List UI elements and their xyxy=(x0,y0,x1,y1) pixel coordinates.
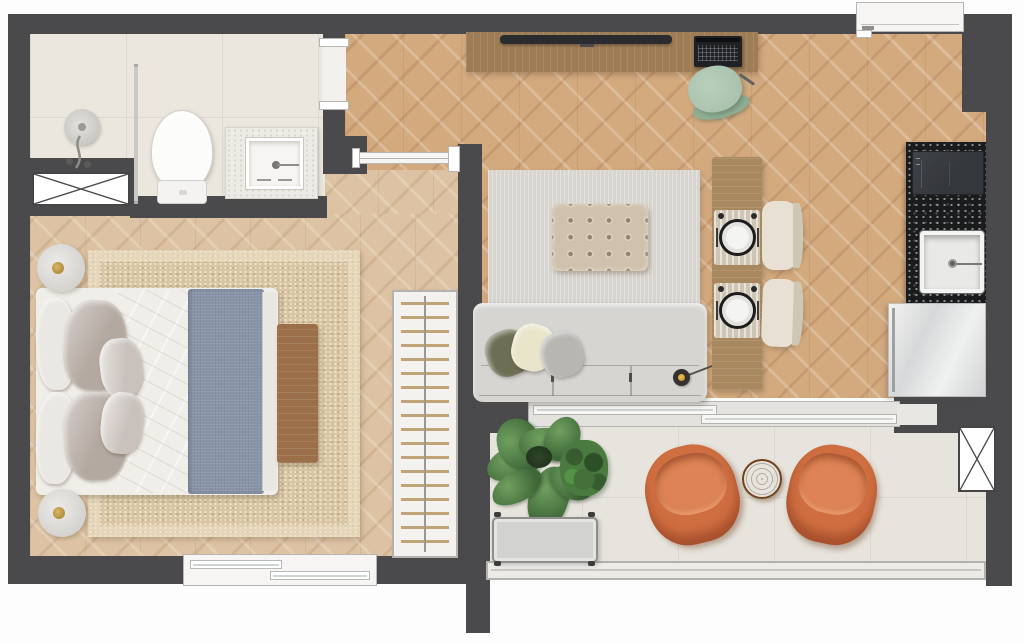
hall-sliding-door-handle xyxy=(352,148,360,168)
bedroom-window xyxy=(183,554,377,586)
lamp-bulb xyxy=(53,507,65,519)
balcony-door-panel-1 xyxy=(533,405,717,415)
bed-sheet-edge xyxy=(262,292,277,491)
glass-line xyxy=(705,418,893,420)
dining-table xyxy=(712,157,762,390)
cutlery-2-right xyxy=(757,301,759,320)
window-glass-line xyxy=(273,575,367,577)
planter-bench xyxy=(492,517,598,563)
railing-line xyxy=(491,569,981,571)
toilet-tank xyxy=(157,180,207,204)
laptop-keyboard xyxy=(698,45,738,61)
planter-foot xyxy=(588,561,595,566)
plate-2 xyxy=(719,292,756,329)
balcony-door-panel-2 xyxy=(701,414,897,424)
wardrobe-rail xyxy=(424,296,426,552)
toilet-flush-button xyxy=(179,190,187,195)
shower-glass-partition xyxy=(134,64,138,204)
lamp-bulb xyxy=(52,262,64,274)
balcony-door-sill xyxy=(897,404,937,425)
bathroom-door-jamb-top xyxy=(319,38,349,47)
plant-center xyxy=(526,446,552,468)
window-glass-line xyxy=(193,564,279,566)
plant-bush xyxy=(560,440,608,496)
cup-1b xyxy=(751,213,757,219)
tv-stand xyxy=(580,44,594,47)
shower-head-center xyxy=(78,123,86,131)
lounge-chair-cushion xyxy=(794,448,872,521)
bed-blanket xyxy=(188,289,264,494)
kitchen-faucet xyxy=(956,263,982,265)
bathroom-doorway xyxy=(322,44,346,104)
toilet-bowl xyxy=(151,110,213,190)
arc-lamp-shade xyxy=(673,369,690,386)
entry-door-jamb xyxy=(856,30,872,38)
vanity-faucet xyxy=(277,164,299,166)
bathroom-door-jamb-bottom xyxy=(319,101,349,110)
bedroom-window-pane-1 xyxy=(190,560,282,569)
cup-2b xyxy=(751,286,757,292)
floor-plan xyxy=(0,0,1024,643)
vanity-sink xyxy=(246,138,303,189)
sofa-front-seam xyxy=(479,395,701,396)
entry-door-panel-line xyxy=(861,24,959,25)
cup-2 xyxy=(718,286,724,292)
round-side-table xyxy=(742,459,782,499)
balcony-railing xyxy=(486,561,986,580)
hall-floor xyxy=(323,170,458,218)
planter-foot xyxy=(588,512,595,517)
cutlery-1-left xyxy=(716,228,718,247)
cooktop-zone-line xyxy=(921,160,922,188)
glass-line xyxy=(537,409,713,411)
lounge-chair-cushion xyxy=(649,446,732,521)
open-wardrobe xyxy=(392,290,458,558)
dining-chair-1 xyxy=(762,201,803,270)
refrigerator xyxy=(888,303,986,397)
cutlery-2-left xyxy=(716,301,718,320)
wall-right-entry-step xyxy=(962,14,988,112)
sofa-stitch xyxy=(629,373,632,382)
balcony-sliding-door xyxy=(528,401,900,427)
refrigerator-handle xyxy=(892,308,895,392)
tv-soundbar xyxy=(500,35,672,44)
cooktop-control xyxy=(916,158,920,159)
bedroom-window-pane-2 xyxy=(270,571,370,580)
bedside-lamp-top xyxy=(37,244,85,292)
hall-sliding-door-track xyxy=(359,158,451,159)
plate-1 xyxy=(719,219,756,256)
service-shaft-bathroom xyxy=(32,172,130,206)
shower-valve-left xyxy=(66,158,73,165)
tufted-ottoman xyxy=(552,204,648,271)
shower-valve-right xyxy=(84,161,91,168)
wall-balcony-left-stub xyxy=(466,418,490,633)
dining-chair-back xyxy=(793,203,803,268)
dining-chair-2 xyxy=(761,278,804,347)
arc-lamp-bulb xyxy=(678,374,685,381)
hall-sliding-door-jamb xyxy=(448,146,460,172)
hall-sliding-door xyxy=(356,152,454,164)
laptop-screen xyxy=(696,38,740,42)
planter-foot xyxy=(494,512,501,517)
cutlery-1-right xyxy=(757,228,759,247)
foot-bench xyxy=(277,324,318,463)
service-shaft-balcony xyxy=(958,426,996,492)
planter-foot xyxy=(494,561,501,566)
cooktop-zone-line xyxy=(949,162,950,186)
kitchen-sink xyxy=(920,231,984,293)
vanity-tap-handle-right xyxy=(278,179,292,181)
cooktop xyxy=(912,151,984,195)
bedside-lamp-bottom xyxy=(38,489,86,537)
vanity-tap-handle-left xyxy=(257,179,271,181)
cup-1 xyxy=(718,213,724,219)
cooktop-control xyxy=(916,164,920,165)
wall-left xyxy=(8,14,30,583)
entry-door xyxy=(856,2,964,32)
laptop xyxy=(694,36,742,67)
